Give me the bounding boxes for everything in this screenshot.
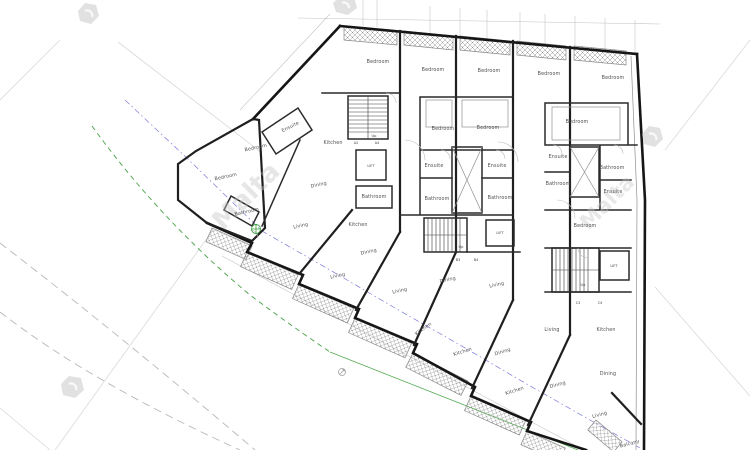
room-label-bedroom: Bedroom [574, 223, 597, 229]
path-shape [557, 200, 575, 218]
lift-label: LIFT [496, 231, 504, 235]
dashed-boundary-curves [0, 243, 255, 450]
stair-left [348, 96, 388, 139]
room-label-bathroom: Bathroom [600, 165, 625, 171]
room-label-living: Living [544, 327, 559, 333]
room-label-dining: Dining [549, 380, 566, 390]
room-label-living: Living [592, 410, 608, 420]
path-shape [0, 243, 255, 450]
construction-lines [0, 40, 750, 450]
rect-shape [406, 353, 469, 395]
site-boundary-green [92, 126, 578, 450]
path-shape [0, 408, 50, 450]
setback-line-blue [125, 100, 640, 448]
lift-right: LIFT [600, 251, 629, 280]
room-label-living: Living [489, 281, 505, 290]
room-label-ensuite: Ensuite [281, 120, 300, 134]
room-label-balcony: Balcony [619, 439, 640, 450]
lift-middle: LIFT [486, 220, 514, 246]
up-label: Up [459, 245, 465, 249]
watermark-logo [61, 376, 84, 398]
room-label-bedroom: Bedroom [538, 71, 561, 77]
section-marker-a2: A2 [354, 141, 358, 145]
path-shape [655, 287, 750, 396]
room-label-dining: Dining [439, 275, 456, 284]
path-shape [55, 230, 213, 450]
room-label-ensuite: Ensuite [549, 154, 568, 160]
room-label-bedroom: Bedroom [214, 172, 238, 183]
section-marker-b3: B3 [456, 258, 460, 262]
path-shape [553, 145, 562, 154]
path-shape [552, 248, 599, 292]
room-label-dining: Dining [600, 371, 616, 377]
path-shape [207, 223, 586, 450]
room-label-bedroom: Bedroom [478, 68, 501, 74]
room-label-dining: Dining [310, 180, 327, 189]
room-label-bathroom: Bathroom [546, 181, 571, 187]
room-label-living: Living [330, 272, 346, 281]
path-shape [578, 248, 588, 258]
lift-shafts [452, 147, 599, 213]
room-label-ensuite: Ensuite [488, 163, 507, 169]
path-shape [612, 393, 641, 424]
path-shape [631, 56, 637, 450]
north-arrow-symbol [339, 369, 346, 376]
path-shape [340, 370, 345, 375]
path-shape [356, 232, 400, 310]
path-shape [665, 40, 750, 150]
path-shape [125, 100, 640, 448]
rect-shape [462, 100, 508, 127]
room-label-living: Living [293, 222, 309, 231]
rect-shape [426, 100, 452, 127]
room-label-bedroom: Bedroom [422, 67, 445, 73]
path-shape [61, 376, 84, 398]
room-label-living: Living [392, 287, 408, 296]
section-marker-c4: C4 [598, 301, 603, 305]
path-shape [496, 150, 505, 159]
path-shape [253, 26, 340, 119]
floor-plan-canvas: LIFT LIFT LIFT [0, 0, 750, 450]
watermark-logo [333, 0, 357, 15]
room-label-kitchen: Kitchen [453, 346, 473, 358]
path-shape [637, 54, 645, 450]
path-shape [528, 335, 570, 425]
path-shape [298, 18, 660, 24]
lift-label: LIFT [610, 264, 618, 268]
g-shape [406, 353, 469, 395]
room-label-dining: Dining [494, 347, 511, 358]
section-marker-c3: C3 [576, 301, 581, 305]
watermark-logo [78, 3, 99, 24]
tree-symbol [252, 225, 261, 234]
section-marker-b4: B4 [474, 258, 478, 262]
path-shape [642, 126, 663, 147]
path-shape [472, 300, 513, 388]
room-label-bathroom: Bathroom [362, 194, 387, 200]
path-shape [240, 14, 330, 110]
path-shape [441, 150, 450, 159]
path-shape [498, 142, 518, 162]
path-shape [614, 145, 623, 154]
room-label-bedroom: Bedroom [367, 59, 390, 65]
path-shape [0, 40, 60, 100]
room-label-bedroom: Bedroom [432, 126, 455, 132]
up-label: Up [372, 134, 378, 138]
path-shape [348, 96, 388, 139]
room-label-ensuite: Ensuite [425, 163, 444, 169]
path-shape [300, 210, 352, 273]
path-shape [118, 42, 262, 153]
section-marker-a4: A4 [375, 141, 379, 145]
room-label-ensuite: Ensuite [604, 189, 623, 195]
room-label-bedroom: Bedroom [477, 125, 500, 131]
path-shape [0, 312, 240, 450]
room-label-bedroom: Bedroom [244, 143, 268, 154]
room-label-kitchen: Kitchen [505, 385, 525, 397]
section-markers: A2A4B3B4C3C4 [354, 141, 603, 305]
up-label: Up [581, 283, 587, 287]
stair-right [552, 248, 599, 292]
room-label-bedroom: Bedroom [602, 75, 625, 81]
door-arcs [250, 93, 623, 258]
path-shape [570, 147, 599, 197]
room-label-bathroom: Bathroom [488, 195, 513, 201]
watermark-logo [642, 126, 663, 147]
room-label-kitchen: Kitchen [596, 327, 615, 333]
path-shape [78, 3, 99, 24]
room-label-bedroom: Bedroom [566, 119, 589, 125]
lift-left: LIFT [356, 150, 386, 180]
outer-walls [178, 26, 645, 450]
room-label-bathroom: Bathroom [425, 196, 450, 202]
room-label-kitchen: Kitchen [323, 140, 342, 146]
room-label-kitchen: Kitchen [348, 222, 367, 228]
watermark-text: Malta [207, 157, 286, 236]
lift-label: LIFT [367, 164, 375, 168]
room-label-dining: Dining [360, 247, 377, 256]
